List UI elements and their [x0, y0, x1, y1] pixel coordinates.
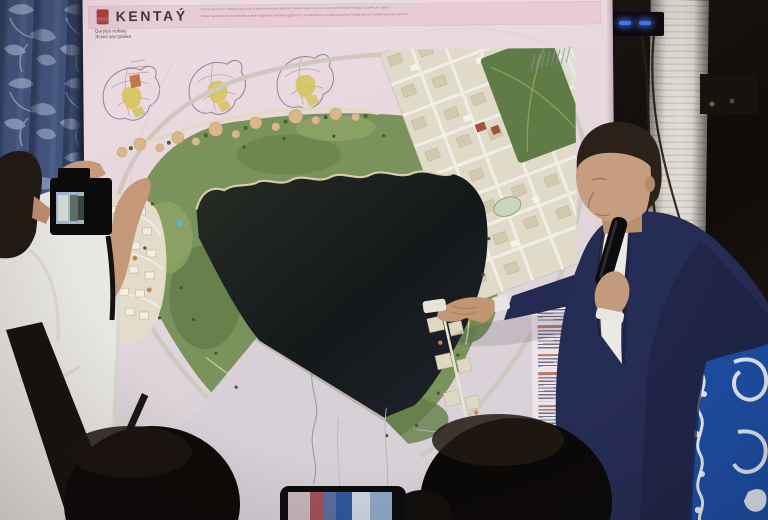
smartphone: [280, 486, 452, 520]
event-photo-scene: KENTAÝ TÚRKISTAN OBLYSY KENTAÝ QALASYNYŃ…: [0, 0, 768, 520]
audience-head-left: [64, 426, 240, 520]
foreground-people: [0, 0, 768, 520]
photographer-arm: [110, 178, 151, 298]
camera: [50, 168, 112, 235]
phone-screen: [288, 492, 392, 520]
pointing-hand: [437, 297, 495, 323]
